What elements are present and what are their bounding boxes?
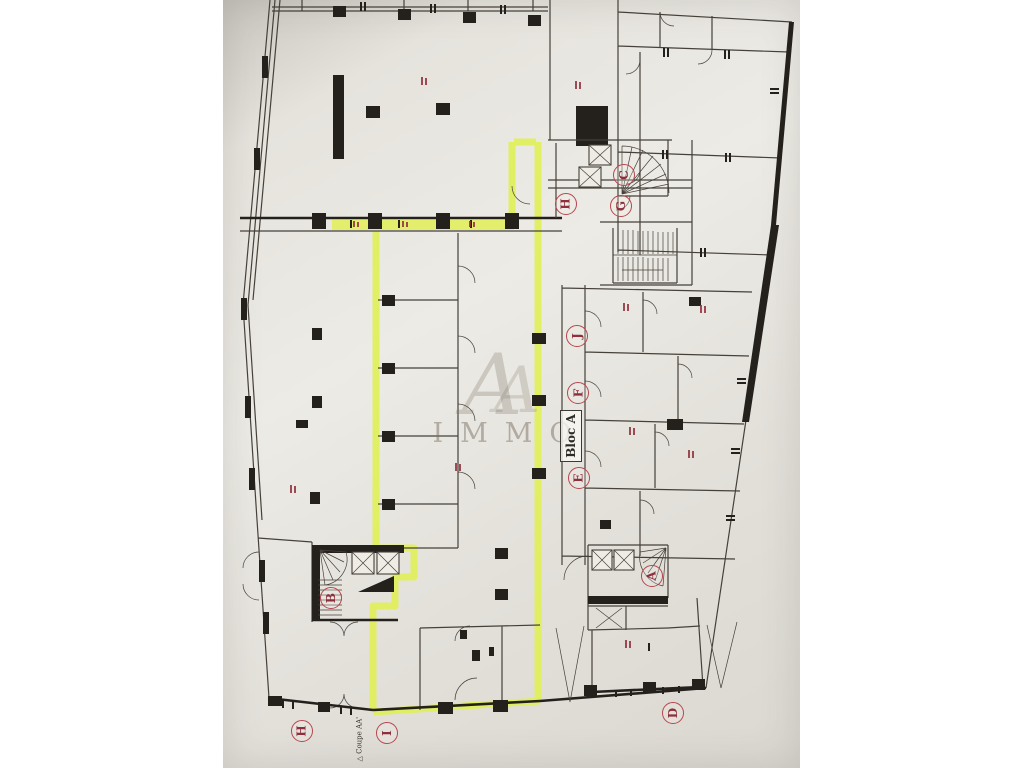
bloc-a-label: Bloc A (560, 410, 582, 462)
unit-marker-label: A (646, 571, 658, 580)
unit-marker-i: I (376, 722, 398, 744)
unit-marker-label: H (560, 198, 572, 209)
unit-marker-label: C (618, 170, 630, 180)
unit-marker-a: A (641, 565, 663, 587)
unit-marker-label: B (325, 593, 337, 603)
section-line-label: △ Coupe AA' (356, 696, 369, 762)
unit-marker-h-upper: H (555, 193, 577, 215)
unit-marker-d: D (662, 702, 684, 724)
unit-marker-label: E (573, 473, 585, 482)
floorplan-photo-page: A A IMMO Bloc A △ Coupe AA' H C G J F E … (0, 0, 1024, 768)
unit-marker-b: B (320, 587, 342, 609)
unit-marker-label: J (571, 333, 583, 339)
unit-marker-h-lower: H (291, 720, 313, 742)
unit-marker-label: D (667, 708, 679, 718)
unit-marker-c: C (613, 164, 635, 186)
unit-marker-e: E (568, 467, 590, 489)
photo-paper (223, 0, 800, 768)
unit-marker-label: H (296, 725, 308, 736)
unit-marker-f: F (567, 382, 589, 404)
unit-marker-label: I (381, 730, 393, 736)
unit-marker-j: J (566, 325, 588, 347)
unit-marker-label: G (615, 201, 627, 211)
unit-marker-g: G (610, 195, 632, 217)
unit-marker-label: F (572, 389, 584, 398)
